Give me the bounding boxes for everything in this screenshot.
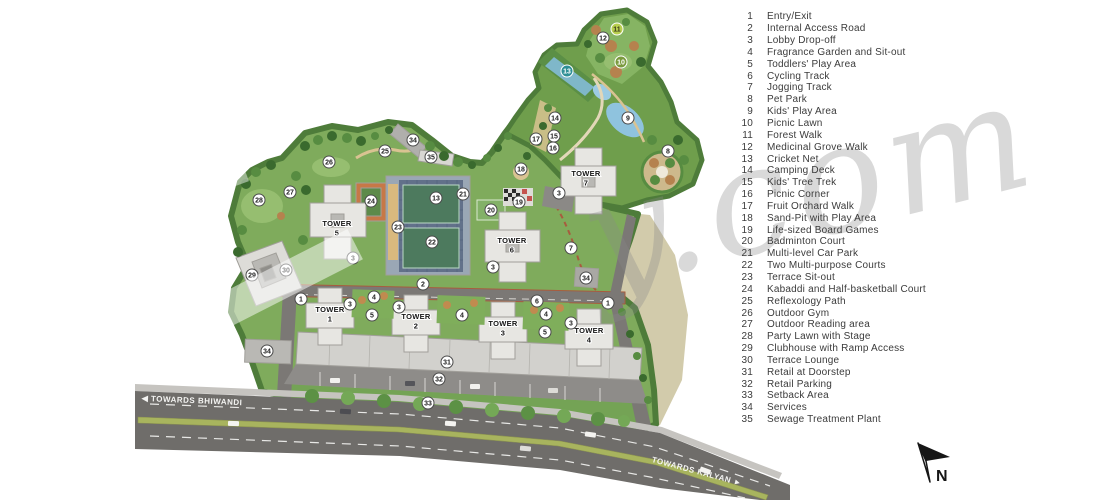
svg-text:TOWER: TOWER bbox=[401, 312, 431, 321]
legend-item-label: Fragrance Garden and Sit-out bbox=[767, 47, 905, 58]
legend-item-18: 18Sand-Pit with Play Area bbox=[731, 212, 983, 224]
legend-item-25: 25Reflexology Path bbox=[731, 295, 983, 307]
legend-item-label: Services bbox=[767, 402, 807, 413]
legend-item-number: 3 bbox=[731, 35, 753, 46]
map-marker-number: 26 bbox=[325, 160, 333, 167]
map-marker-number: 25 bbox=[381, 149, 389, 156]
svg-text:TOWER: TOWER bbox=[488, 319, 518, 328]
legend-item-number: 7 bbox=[731, 82, 753, 93]
legend-item-5: 5Toddlers' Play Area bbox=[731, 58, 983, 70]
parked-car bbox=[470, 384, 480, 389]
map-marker-number: 20 bbox=[487, 208, 495, 215]
legend-item-label: Badminton Court bbox=[767, 236, 845, 247]
car bbox=[228, 421, 239, 426]
map-marker-number: 10 bbox=[617, 60, 625, 67]
legend-item-3: 3Lobby Drop-off bbox=[731, 35, 983, 47]
map-marker-33: 33 bbox=[422, 397, 434, 409]
map-marker-4: 4 bbox=[456, 309, 468, 321]
map-marker-11: 11 bbox=[611, 23, 623, 35]
map-marker-number: 3 bbox=[557, 191, 561, 198]
map-marker-23: 23 bbox=[392, 221, 404, 233]
legend-item-number: 12 bbox=[731, 142, 753, 153]
map-marker-number: 24 bbox=[367, 199, 375, 206]
north-arrow-label: N bbox=[936, 468, 948, 485]
legend-item-12: 12Medicinal Grove Walk bbox=[731, 141, 983, 153]
legend-item-label: Medicinal Grove Walk bbox=[767, 142, 868, 153]
parked-car bbox=[548, 388, 558, 393]
legend-item-number: 16 bbox=[731, 189, 753, 200]
legend-item-label: Two Multi-purpose Courts bbox=[767, 260, 886, 271]
legend-item-label: Pet Park bbox=[767, 94, 807, 105]
north-arrow: N bbox=[918, 443, 950, 485]
map-marker-number: 33 bbox=[424, 401, 432, 408]
multipurpose-court-1 bbox=[403, 185, 459, 223]
legend-item-14: 14Camping Deck bbox=[731, 165, 983, 177]
legend-item-number: 33 bbox=[731, 390, 753, 401]
party-lawn bbox=[241, 189, 283, 223]
svg-text:TOWER: TOWER bbox=[574, 326, 604, 335]
site-plan-page: TOWER5TOWER6TOWER7TOWER1TOWER2TOWER3TOWE… bbox=[0, 0, 1100, 500]
svg-text:TOWER: TOWER bbox=[497, 236, 527, 245]
legend-item-label: Kabaddi and Half-basketball Court bbox=[767, 284, 926, 295]
legend-item-label: Terrace Lounge bbox=[767, 355, 839, 366]
legend-item-number: 17 bbox=[731, 201, 753, 212]
legend-item-number: 28 bbox=[731, 331, 753, 342]
parked-car bbox=[405, 381, 415, 386]
legend-item-number: 26 bbox=[731, 308, 753, 319]
legend-item-number: 21 bbox=[731, 248, 753, 259]
legend-item-20: 20Badminton Court bbox=[731, 236, 983, 248]
legend-item-2: 2Internal Access Road bbox=[731, 23, 983, 35]
map-marker-35: 35 bbox=[425, 151, 437, 163]
map-marker-number: 34 bbox=[263, 349, 271, 356]
legend-item-32: 32Retail Parking bbox=[731, 378, 983, 390]
legend-item-label: Sewage Treatment Plant bbox=[767, 414, 881, 425]
legend-item-28: 28Party Lawn with Stage bbox=[731, 331, 983, 343]
legend-item-6: 6Cycling Track bbox=[731, 70, 983, 82]
legend-item-label: Outdoor Gym bbox=[767, 308, 829, 319]
legend-item-13: 13Cricket Net bbox=[731, 153, 983, 165]
map-marker-28: 28 bbox=[253, 194, 265, 206]
legend-item-number: 11 bbox=[731, 130, 753, 141]
legend-item-label: Lobby Drop-off bbox=[767, 35, 836, 46]
legend-item-33: 33Setback Area bbox=[731, 390, 983, 402]
map-marker-number: 9 bbox=[626, 116, 630, 123]
svg-text:4: 4 bbox=[587, 336, 592, 345]
legend-item-number: 22 bbox=[731, 260, 753, 271]
map-marker-16: 16 bbox=[547, 142, 559, 154]
map-marker-number: 32 bbox=[435, 377, 443, 384]
legend-item-22: 22Two Multi-purpose Courts bbox=[731, 260, 983, 272]
map-marker-number: 19 bbox=[515, 200, 523, 207]
legend-item-label: Multi-level Car Park bbox=[767, 248, 858, 259]
legend-item-16: 16Picnic Corner bbox=[731, 189, 983, 201]
legend-item-26: 26Outdoor Gym bbox=[731, 307, 983, 319]
map-marker-number: 4 bbox=[372, 295, 376, 302]
svg-text:TOWER: TOWER bbox=[322, 219, 352, 228]
legend-item-label: Fruit Orchard Walk bbox=[767, 201, 854, 212]
map-marker-17: 17 bbox=[530, 133, 542, 145]
legend-item-label: Setback Area bbox=[767, 390, 829, 401]
legend-item-4: 4Fragrance Garden and Sit-out bbox=[731, 47, 983, 59]
legend-item-19: 19Life-sized Board Games bbox=[731, 224, 983, 236]
map-marker-34: 34 bbox=[580, 272, 592, 284]
map-marker-4: 4 bbox=[368, 291, 380, 303]
legend-item-27: 27Outdoor Reading area bbox=[731, 319, 983, 331]
map-marker-number: 21 bbox=[459, 192, 467, 199]
map-marker-25: 25 bbox=[379, 145, 391, 157]
map-marker-6: 6 bbox=[531, 295, 543, 307]
map-marker-number: 12 bbox=[599, 36, 607, 43]
map-marker-number: 27 bbox=[286, 190, 294, 197]
legend-item-number: 32 bbox=[731, 379, 753, 390]
legend-item-11: 11Forest Walk bbox=[731, 129, 983, 141]
legend-item-35: 35Sewage Treatment Plant bbox=[731, 414, 983, 426]
legend-item-label: Terrace Sit-out bbox=[767, 272, 835, 283]
map-marker-number: 3 bbox=[569, 321, 573, 328]
legend-item-label: Picnic Corner bbox=[767, 189, 830, 200]
svg-text:1: 1 bbox=[328, 315, 332, 324]
map-marker-3: 3 bbox=[344, 298, 356, 310]
legend-item-label: Party Lawn with Stage bbox=[767, 331, 871, 342]
map-marker-number: 4 bbox=[460, 313, 464, 320]
map-marker-number: 13 bbox=[563, 69, 571, 76]
map-marker-3: 3 bbox=[393, 301, 405, 313]
legend-item-label: Camping Deck bbox=[767, 165, 835, 176]
legend-item-label: Cycling Track bbox=[767, 71, 830, 82]
legend-item-label: Sand-Pit with Play Area bbox=[767, 213, 876, 224]
map-marker-4: 4 bbox=[540, 308, 552, 320]
map-marker-18: 18 bbox=[515, 163, 527, 175]
legend-item-label: Cricket Net bbox=[767, 154, 819, 165]
map-marker-3: 3 bbox=[487, 261, 499, 273]
legend-item-number: 20 bbox=[731, 236, 753, 247]
legend-item-label: Picnic Lawn bbox=[767, 118, 823, 129]
map-marker-5: 5 bbox=[366, 309, 378, 321]
map-marker-5: 5 bbox=[539, 326, 551, 338]
legend-item-24: 24Kabaddi and Half-basketball Court bbox=[731, 283, 983, 295]
map-marker-34: 34 bbox=[261, 345, 273, 357]
map-marker-number: 35 bbox=[427, 155, 435, 162]
map-marker-9: 9 bbox=[622, 112, 634, 124]
legend-item-number: 31 bbox=[731, 367, 753, 378]
legend-item-label: Entry/Exit bbox=[767, 11, 812, 22]
legend-item-label: Kids' Tree Trek bbox=[767, 177, 836, 188]
legend-item-label: Life-sized Board Games bbox=[767, 225, 879, 236]
map-marker-1: 1 bbox=[295, 293, 307, 305]
legend-item-17: 17Fruit Orchard Walk bbox=[731, 201, 983, 213]
map-marker-31: 31 bbox=[441, 356, 453, 368]
map-marker-7: 7 bbox=[565, 242, 577, 254]
svg-text:TOWER: TOWER bbox=[315, 305, 345, 314]
map-marker-number: 7 bbox=[569, 246, 573, 253]
map-marker-27: 27 bbox=[284, 186, 296, 198]
legend-item-number: 29 bbox=[731, 343, 753, 354]
legend-item-label: Clubhouse with Ramp Access bbox=[767, 343, 905, 354]
map-marker-number: 13 bbox=[432, 196, 440, 203]
legend-item-number: 34 bbox=[731, 402, 753, 413]
map-marker-3: 3 bbox=[553, 187, 565, 199]
map-marker-number: 1 bbox=[299, 297, 303, 304]
map-marker-number: 34 bbox=[582, 276, 590, 283]
legend-item-number: 8 bbox=[731, 94, 753, 105]
svg-text:2: 2 bbox=[414, 322, 418, 331]
legend-item-29: 29Clubhouse with Ramp Access bbox=[731, 343, 983, 355]
legend-item-number: 18 bbox=[731, 213, 753, 224]
svg-text:3: 3 bbox=[501, 329, 505, 338]
legend-item-10: 10Picnic Lawn bbox=[731, 118, 983, 130]
map-marker-number: 3 bbox=[397, 305, 401, 312]
legend-item-label: Reflexology Path bbox=[767, 296, 846, 307]
map-marker-number: 31 bbox=[443, 360, 451, 367]
legend-item-21: 21Multi-level Car Park bbox=[731, 248, 983, 260]
legend-item-number: 35 bbox=[731, 414, 753, 425]
map-marker-number: 15 bbox=[550, 134, 558, 141]
map-marker-34: 34 bbox=[407, 134, 419, 146]
legend-item-number: 25 bbox=[731, 296, 753, 307]
map-marker-20: 20 bbox=[485, 204, 497, 216]
legend-item-number: 2 bbox=[731, 23, 753, 34]
parked-car bbox=[330, 378, 340, 383]
map-marker-13: 13 bbox=[561, 65, 573, 77]
legend-item-9: 9Kids' Play Area bbox=[731, 106, 983, 118]
legend-item-number: 13 bbox=[731, 154, 753, 165]
map-marker-number: 5 bbox=[370, 313, 374, 320]
map-marker-19: 19 bbox=[513, 196, 525, 208]
map-marker-number: 5 bbox=[543, 330, 547, 337]
legend-item-label: Outdoor Reading area bbox=[767, 319, 870, 330]
map-marker-13: 13 bbox=[430, 192, 442, 204]
legend-item-number: 23 bbox=[731, 272, 753, 283]
legend-item-31: 31Retail at Doorstep bbox=[731, 366, 983, 378]
legend-item-label: Kids' Play Area bbox=[767, 106, 837, 117]
legend-item-23: 23Terrace Sit-out bbox=[731, 272, 983, 284]
map-marker-21: 21 bbox=[457, 188, 469, 200]
legend-item-label: Forest Walk bbox=[767, 130, 822, 141]
map-marker-number: 3 bbox=[348, 302, 352, 309]
legend-item-number: 4 bbox=[731, 47, 753, 58]
map-marker-number: 17 bbox=[532, 137, 540, 144]
map-marker-10: 10 bbox=[615, 56, 627, 68]
map-marker-number: 6 bbox=[535, 299, 539, 306]
map-marker-number: 18 bbox=[517, 167, 525, 174]
map-marker-3: 3 bbox=[565, 317, 577, 329]
legend-item-15: 15Kids' Tree Trek bbox=[731, 177, 983, 189]
legend-item-number: 5 bbox=[731, 59, 753, 70]
legend-item-8: 8Pet Park bbox=[731, 94, 983, 106]
legend-item-number: 30 bbox=[731, 355, 753, 366]
legend-item-label: Internal Access Road bbox=[767, 23, 866, 34]
map-marker-number: 34 bbox=[409, 138, 417, 145]
car bbox=[445, 421, 456, 427]
map-marker-15: 15 bbox=[548, 130, 560, 142]
legend-item-label: Retail at Doorstep bbox=[767, 367, 851, 378]
map-marker-number: 14 bbox=[551, 116, 559, 123]
map-marker-number: 2 bbox=[421, 282, 425, 289]
map-marker-22: 22 bbox=[426, 236, 438, 248]
car bbox=[340, 409, 351, 415]
legend-item-30: 30Terrace Lounge bbox=[731, 354, 983, 366]
map-marker-32: 32 bbox=[433, 373, 445, 385]
legend-item-label: Toddlers' Play Area bbox=[767, 59, 856, 70]
legend-item-number: 27 bbox=[731, 319, 753, 330]
map-marker-number: 16 bbox=[549, 146, 557, 153]
legend-item-number: 10 bbox=[731, 118, 753, 129]
map-marker-14: 14 bbox=[549, 112, 561, 124]
legend-item-number: 1 bbox=[731, 11, 753, 22]
map-marker-number: 23 bbox=[394, 225, 402, 232]
legend-item-number: 15 bbox=[731, 177, 753, 188]
legend-item-34: 34Services bbox=[731, 402, 983, 414]
legend-item-7: 7Jogging Track bbox=[731, 82, 983, 94]
legend-item-number: 19 bbox=[731, 225, 753, 236]
map-marker-2: 2 bbox=[417, 278, 429, 290]
legend-item-number: 24 bbox=[731, 284, 753, 295]
map-marker-number: 3 bbox=[491, 265, 495, 272]
legend-item-1: 1Entry/Exit bbox=[731, 11, 983, 23]
map-marker-26: 26 bbox=[323, 156, 335, 168]
legend-item-number: 6 bbox=[731, 71, 753, 82]
legend-item-number: 14 bbox=[731, 165, 753, 176]
svg-text:6: 6 bbox=[510, 246, 514, 255]
legend: 1Entry/Exit2Internal Access Road3Lobby D… bbox=[731, 11, 983, 426]
car bbox=[520, 446, 531, 452]
map-marker-number: 11 bbox=[613, 27, 621, 34]
map-marker-number: 28 bbox=[255, 198, 263, 205]
map-marker-12: 12 bbox=[597, 32, 609, 44]
map-marker-number: 4 bbox=[544, 312, 548, 319]
legend-item-label: Retail Parking bbox=[767, 379, 832, 390]
legend-item-label: Jogging Track bbox=[767, 82, 832, 93]
legend-item-number: 9 bbox=[731, 106, 753, 117]
map-marker-number: 22 bbox=[428, 240, 436, 247]
map-marker-24: 24 bbox=[365, 195, 377, 207]
